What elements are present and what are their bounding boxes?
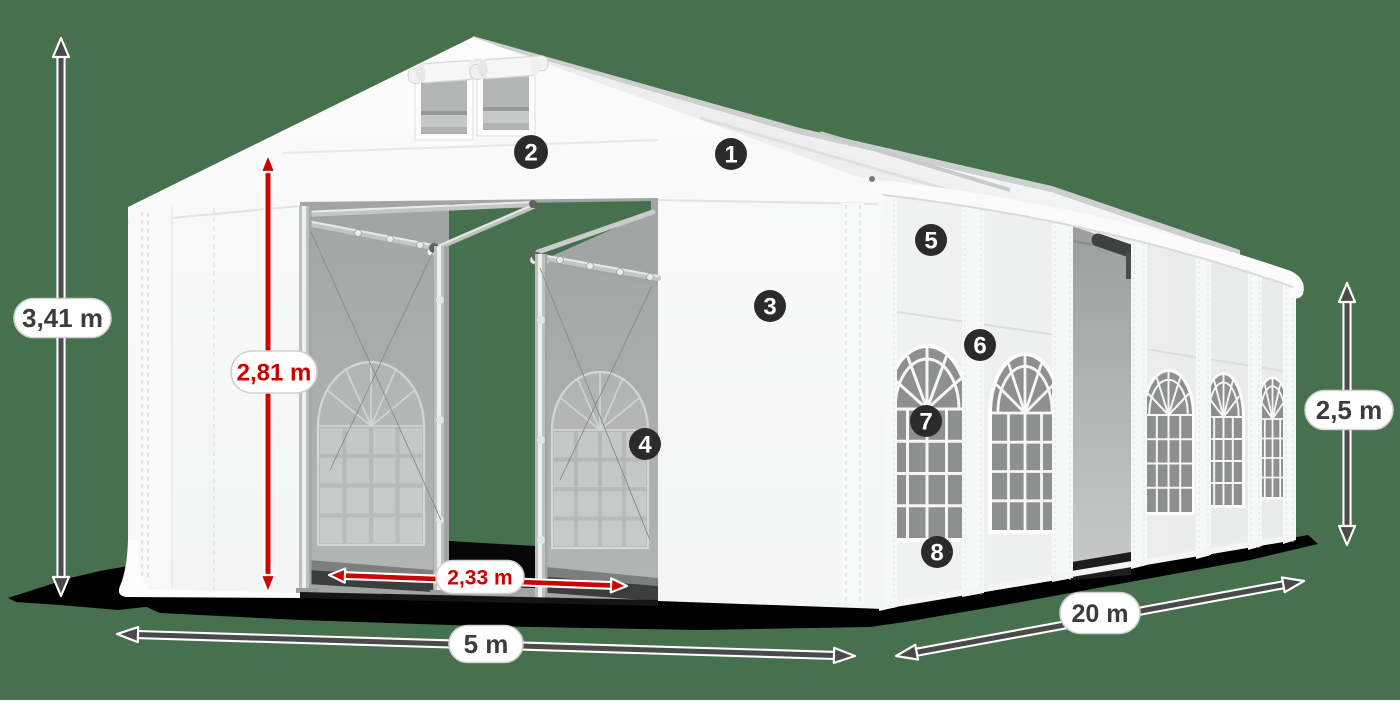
- svg-text:7: 7: [919, 409, 932, 436]
- svg-text:3: 3: [763, 294, 776, 321]
- svg-text:1: 1: [724, 142, 737, 169]
- svg-text:2,81 m: 2,81 m: [237, 359, 312, 386]
- svg-text:2: 2: [524, 140, 537, 167]
- svg-text:20 m: 20 m: [1072, 600, 1129, 628]
- svg-text:2,5 m: 2,5 m: [1316, 395, 1383, 425]
- svg-text:3,41 m: 3,41 m: [22, 303, 103, 333]
- svg-text:8: 8: [930, 540, 943, 567]
- svg-text:5 m: 5 m: [464, 629, 509, 659]
- svg-text:5: 5: [924, 228, 937, 255]
- svg-text:4: 4: [638, 432, 652, 459]
- svg-text:2,33 m: 2,33 m: [447, 566, 512, 589]
- svg-text:6: 6: [973, 333, 986, 360]
